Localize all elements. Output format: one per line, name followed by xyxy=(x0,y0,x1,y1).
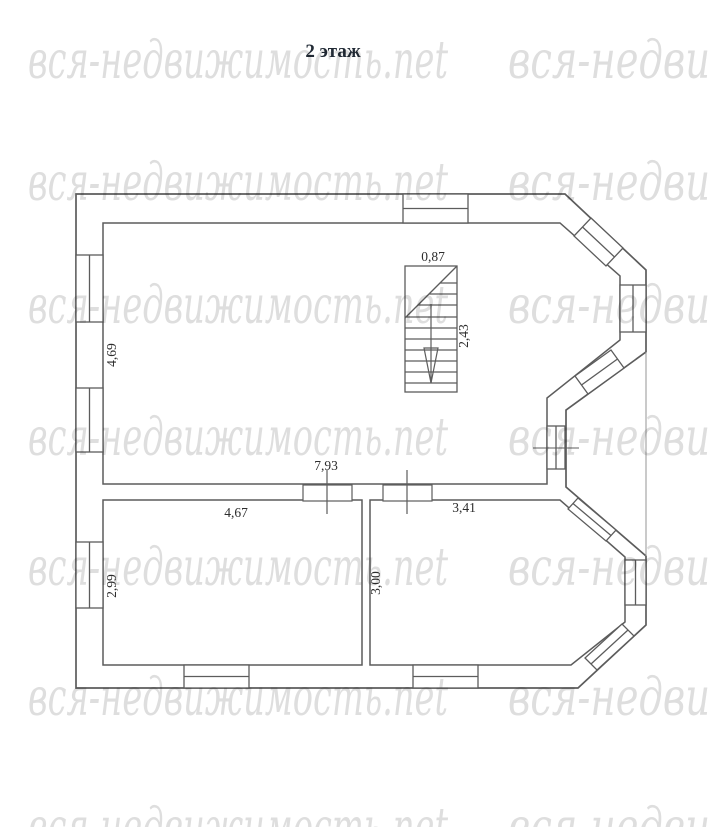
dim-main-room-depth: 4,69 xyxy=(104,343,119,367)
svg-text:вся-недви: вся-недви xyxy=(508,31,710,91)
svg-text:вся-недвижимость.net: вся-недвижимость.net xyxy=(28,153,448,213)
svg-text:вся-недвижимость.net: вся-недвижимость.net xyxy=(28,538,448,598)
svg-text:вся-недвижимость.net: вся-недвижимость.net xyxy=(28,276,448,336)
doors xyxy=(303,470,432,514)
dim-stairs-width: 0,87 xyxy=(421,249,445,264)
watermark-row: вся-недвижимость.net вся-недви xyxy=(28,276,710,336)
watermark-row: вся-недвижимость.net вся-недви xyxy=(28,538,710,598)
watermark-row: вся-недвижимость.net вся-недви xyxy=(28,153,710,213)
watermark-row: вся-недвижимость.net вся-недви xyxy=(28,668,710,728)
svg-text:вся-недви: вся-недви xyxy=(508,408,710,468)
door-main-to-right-room xyxy=(383,470,432,514)
svg-text:вся-недвижимость.net: вся-недвижимость.net xyxy=(28,408,448,468)
svg-text:вся-недвижимость.net: вся-недвижимость.net xyxy=(28,798,448,827)
svg-text:вся-недви: вся-недви xyxy=(508,668,710,728)
door-main-to-left-room xyxy=(303,470,352,514)
window-topright-bevel xyxy=(574,218,623,266)
svg-text:вся-недвижимость.net: вся-недвижимость.net xyxy=(28,31,448,91)
svg-text:вся-недви: вся-недви xyxy=(508,798,710,827)
dim-right-room-width: 3,41 xyxy=(452,500,476,515)
watermark-row: вся-недвижимость.net вся-недви xyxy=(28,798,710,827)
watermark-row: вся-недвижимость.net вся-недви xyxy=(28,408,710,468)
dim-stairs-depth: 2,43 xyxy=(456,324,471,348)
floor-plan-page: 0,87 2,43 4,69 7,93 4,67 2,99 3,41 3,00 … xyxy=(0,0,714,827)
svg-text:вся-недви: вся-недви xyxy=(508,538,710,598)
svg-text:вся-недви: вся-недви xyxy=(508,153,710,213)
watermark-row: вся-недвижимость.net вся-недви xyxy=(28,31,710,91)
svg-text:вся-недви: вся-недви xyxy=(508,276,710,336)
window-bay-lower-diagonal xyxy=(585,624,634,670)
watermark-layer: вся-недвижимость.net вся-недви вся-недви… xyxy=(28,31,710,827)
window-bay-upper-diagonal xyxy=(568,498,616,541)
svg-text:вся-недвижимость.net: вся-недвижимость.net xyxy=(28,668,448,728)
dim-left-room-width: 4,67 xyxy=(224,505,248,520)
